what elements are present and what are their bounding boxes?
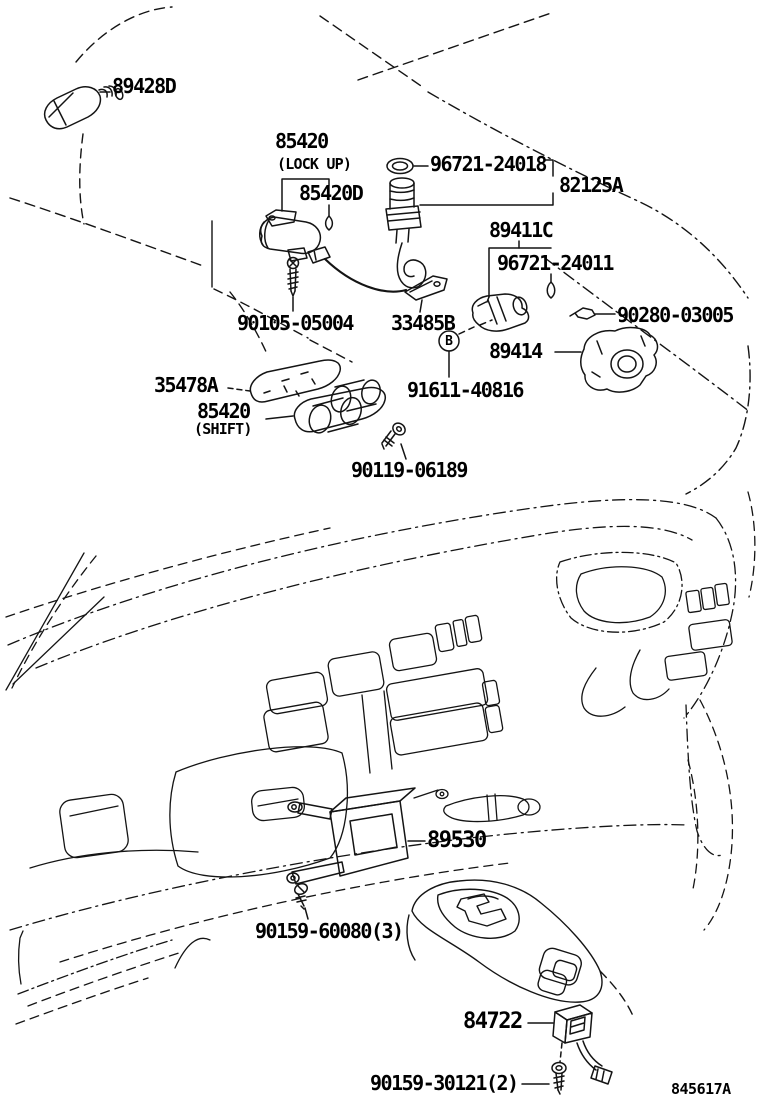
screw-90159-60080-drawing bbox=[293, 882, 309, 909]
part-label-96721-24018: 96721-24018 bbox=[430, 154, 546, 174]
part-label-82125a: 82125A bbox=[559, 175, 622, 195]
part-label-90280-03005: 90280-03005 bbox=[617, 305, 733, 325]
housing-89414-drawing bbox=[581, 328, 658, 393]
part-label-90119-06189: 90119-06189 bbox=[351, 460, 467, 480]
dashboard-drawing bbox=[6, 492, 755, 1024]
part-label-lockup-qualifier: (LOCK UP) bbox=[277, 157, 351, 172]
part-label-96721-24011: 96721-24011 bbox=[497, 253, 613, 273]
parts-diagram-page: 89428D 85420 (LOCK UP) 85420D 96721-2401… bbox=[0, 0, 760, 1112]
bracket-33485b-drawing bbox=[405, 276, 447, 300]
diagram-line-art bbox=[0, 0, 760, 1112]
part-label-shift-qualifier: (SHIFT) bbox=[194, 422, 252, 437]
part-label-89411c: 89411C bbox=[489, 220, 552, 240]
shift-solenoid-drawing bbox=[294, 378, 385, 435]
screw-90159-30121-drawing bbox=[552, 1063, 566, 1095]
part-label-89530: 89530 bbox=[427, 830, 486, 852]
part-label-85420-shift: 85420 bbox=[197, 401, 250, 421]
part-label-85420-lockup: 85420 bbox=[275, 131, 328, 151]
part-label-33485b: 33485B bbox=[391, 313, 454, 333]
part-label-89428d: 89428D bbox=[112, 76, 175, 96]
part-label-89414: 89414 bbox=[489, 341, 542, 361]
screw-90105-drawing bbox=[288, 258, 299, 297]
clip-90280-drawing bbox=[570, 308, 595, 319]
switch-84722-drawing bbox=[553, 1005, 612, 1084]
part-label-35478a: 35478A bbox=[154, 375, 217, 395]
part-label-84722: 84722 bbox=[463, 1011, 522, 1033]
console-drawing bbox=[407, 880, 633, 1016]
part-label-90159-30121: 90159-30121(2) bbox=[370, 1073, 518, 1093]
part-label-91611-40816: 91611-40816 bbox=[407, 380, 523, 400]
part-label-90105-05004: 90105-05004 bbox=[237, 313, 353, 333]
diagram-code: 845617A bbox=[671, 1082, 731, 1097]
part-label-85420d: 85420D bbox=[299, 183, 362, 203]
callout-letter-b: B bbox=[440, 335, 458, 348]
part-label-90159-60080: 90159-60080(3) bbox=[255, 921, 403, 941]
ecu-89530-drawing bbox=[287, 788, 415, 884]
connector-82125a-drawing bbox=[386, 159, 426, 288]
screw-90119-drawing bbox=[382, 421, 408, 449]
